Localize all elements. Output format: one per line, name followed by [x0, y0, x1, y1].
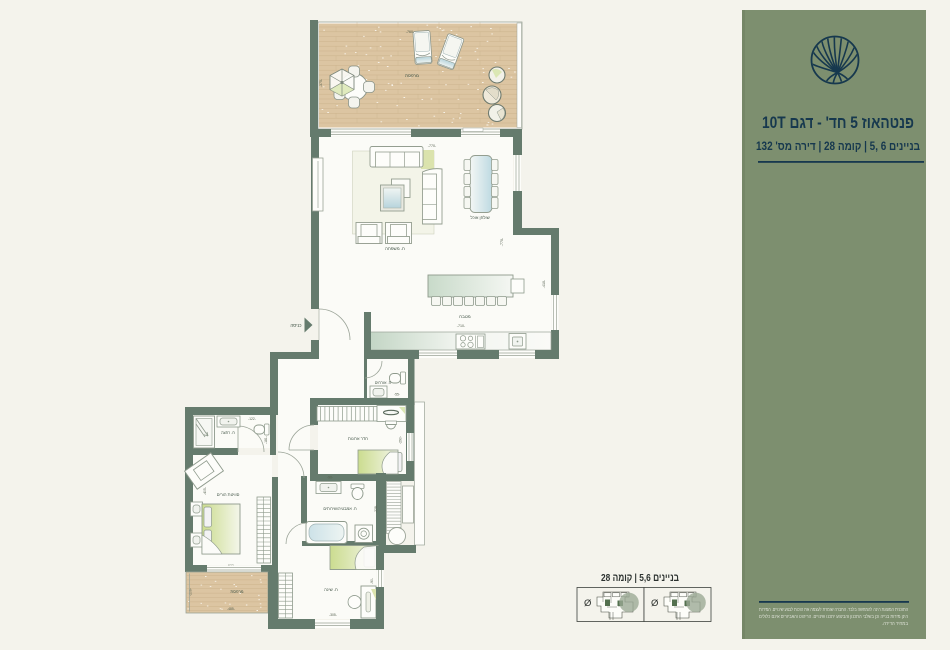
svg-text:-122-: -122-: [248, 417, 256, 421]
svg-text:מרפסת: מרפסת: [230, 589, 243, 594]
svg-text:-770-: -770-: [428, 144, 437, 148]
svg-text:-375-: -375-: [319, 78, 323, 87]
svg-text:-290-: -290-: [399, 436, 403, 444]
svg-text:-305-: -305-: [329, 613, 337, 617]
svg-text:-485-: -485-: [227, 607, 235, 611]
svg-text:-90-: -90-: [327, 476, 333, 480]
svg-text:ח. אמבטיה/שירותים: ח. אמבטיה/שירותים: [323, 506, 357, 511]
svg-text:-410-: -410-: [542, 279, 546, 288]
svg-text:סוויטת הורים: סוויטת הורים: [217, 492, 240, 497]
svg-text:כניסה: כניסה: [290, 323, 302, 328]
svg-text:-760-: -760-: [406, 30, 415, 34]
svg-text:מרפסת: מרפסת: [405, 73, 419, 78]
svg-text:-405-: -405-: [203, 487, 207, 495]
svg-text:-228-: -228-: [374, 505, 378, 513]
svg-text:במחיר הדירה.: במחיר הדירה.: [882, 621, 908, 626]
svg-text:-90-: -90-: [370, 578, 374, 584]
svg-text:Ø: Ø: [651, 598, 659, 609]
svg-text:ח. משפחה: ח. משפחה: [385, 246, 405, 251]
svg-text:שולחן אוכל: שולחן אוכל: [470, 215, 489, 220]
svg-text:ח. שינה: ח. שינה: [324, 587, 338, 592]
svg-text:-55-: -55-: [394, 393, 400, 397]
svg-text:פנטהאוז 5 חד' - דגם 10T: פנטהאוז 5 חד' - דגם 10T: [762, 114, 914, 132]
svg-text:הינן מידות בנייה וכן בשלבי התכ: הינן מידות בנייה וכן בשלבי התכנון והביצו…: [759, 614, 908, 619]
svg-text:Ø: Ø: [584, 598, 592, 609]
svg-text:-770-: -770-: [500, 237, 504, 246]
svg-text:-206-: -206-: [189, 588, 193, 596]
svg-text:-710-: -710-: [457, 324, 466, 328]
svg-text:התוכנית המוצגת הינה להמחשה בלב: התוכנית המוצגת הינה להמחשה בלבד. החברה ש…: [759, 607, 908, 612]
svg-text:בניינים ‪5, 6‬ | קומה 28 | דיר: בניינים ‪5, 6‬ | קומה 28 | דירה מס' 132: [756, 141, 920, 153]
svg-text:-181-: -181-: [264, 436, 268, 444]
svg-text:מטבח: מטבח: [459, 314, 470, 319]
svg-text:ח. רחצה: ח. רחצה: [221, 430, 235, 435]
svg-text:בניינים ‪5,6‬ | קומה 28: בניינים ‪5,6‬ | קומה 28: [601, 572, 679, 584]
svg-text:ח. אורחים: ח. אורחים: [375, 380, 392, 385]
svg-text:חדר ארונות: חדר ארונות: [348, 436, 368, 441]
